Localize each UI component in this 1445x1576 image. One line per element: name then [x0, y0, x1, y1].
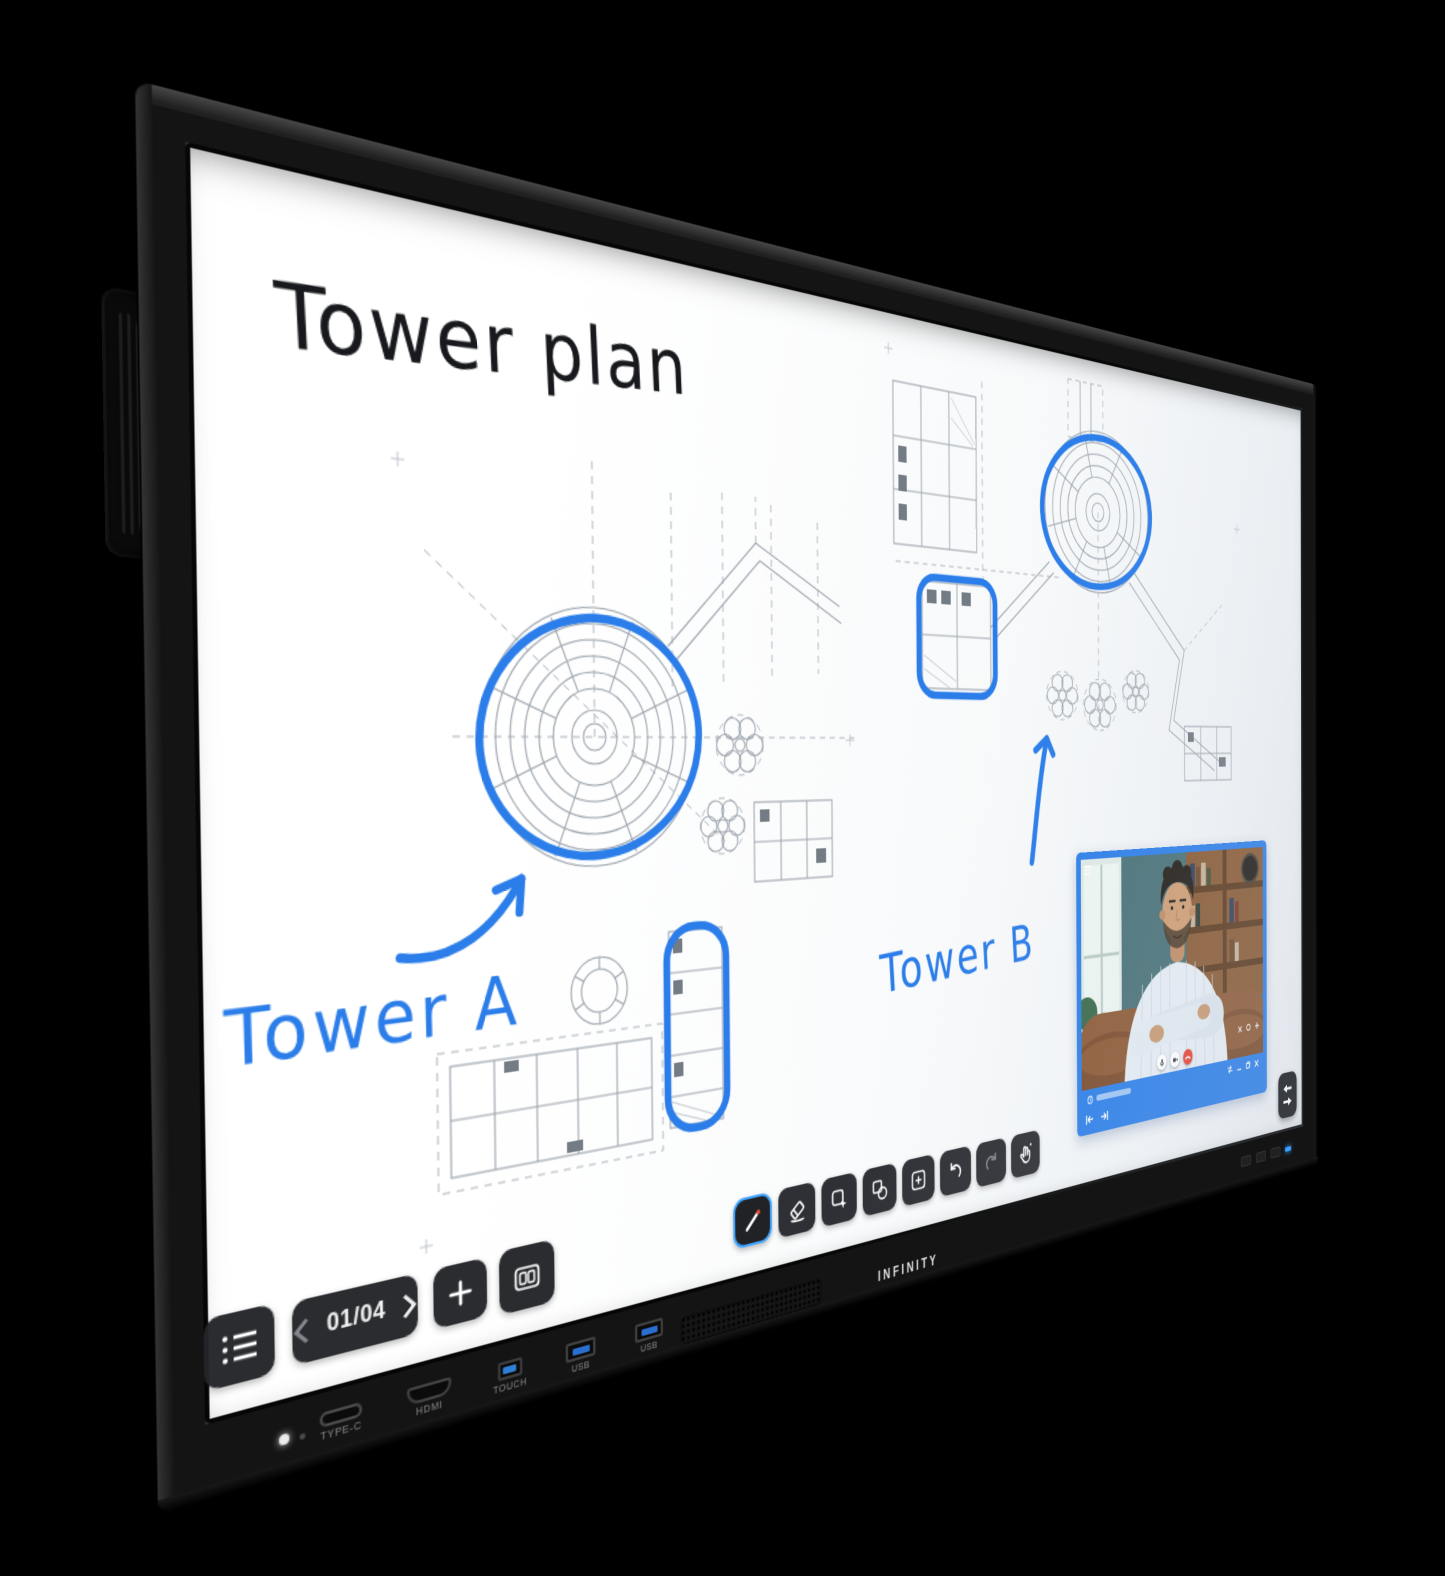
- mute-mic-button[interactable]: [1157, 1053, 1167, 1071]
- bezel-control-buttons: [1241, 1143, 1291, 1167]
- video-feed: [1081, 847, 1263, 1091]
- previous-page-icon[interactable]: [293, 1318, 318, 1344]
- ink-annotations: [391, 294, 1155, 1183]
- stair-cluster-a: [669, 927, 724, 1131]
- tree-icon: [716, 715, 764, 776]
- sensor-dot: [300, 1433, 306, 1441]
- undo-button[interactable]: [940, 1145, 971, 1197]
- tree-icon: [1122, 670, 1148, 713]
- swap-icon[interactable]: [1227, 1064, 1233, 1074]
- rooms-b-south: [1184, 726, 1231, 780]
- swap-windows-icon: [1282, 1081, 1292, 1108]
- shapes-icon: [870, 1175, 889, 1205]
- tree-icon: [1083, 679, 1116, 731]
- video-menu-icon[interactable]: [1085, 865, 1091, 877]
- page-number: 01/04: [326, 1298, 386, 1339]
- usb-port: USB: [635, 1317, 663, 1356]
- interactive-display: Tower plan Tower A Tower B: [135, 80, 1318, 1515]
- annotated-rooms-b: [922, 581, 991, 690]
- gesture-icon: [1018, 1141, 1034, 1168]
- undo-icon: [947, 1157, 964, 1185]
- rooms-a: [754, 800, 832, 882]
- bezel-right-face: [1313, 384, 1318, 1166]
- eraser-icon: [787, 1194, 807, 1225]
- touch-port: TOUCH: [493, 1355, 527, 1397]
- skip-to-end-icon[interactable]: [1100, 1110, 1108, 1123]
- type-c-port: TYPE-C: [320, 1402, 363, 1444]
- video-call-window[interactable]: [1076, 840, 1267, 1137]
- close-icon[interactable]: [1238, 1025, 1242, 1033]
- power-led: [279, 1433, 290, 1447]
- add-object-tool-button[interactable]: [902, 1154, 935, 1207]
- status-led: [1285, 1146, 1291, 1152]
- add-object-icon: [909, 1166, 927, 1195]
- display-bezel: Tower plan Tower A Tower B: [135, 80, 1318, 1515]
- next-page-icon[interactable]: [395, 1294, 418, 1319]
- gesture-tool-button[interactable]: [1011, 1130, 1040, 1179]
- restore-icon[interactable]: [1246, 1060, 1251, 1069]
- bezel-button[interactable]: [1241, 1154, 1251, 1167]
- building-b-west: [893, 380, 977, 552]
- camera-button[interactable]: [1170, 1051, 1180, 1068]
- eraser-tool-button[interactable]: [778, 1181, 815, 1238]
- select-icon: [829, 1184, 849, 1215]
- minimize-icon[interactable]: [1237, 1062, 1242, 1071]
- redo-icon: [983, 1149, 999, 1177]
- add-page-button[interactable]: [433, 1257, 487, 1330]
- meeting-info-text: [1096, 1087, 1131, 1101]
- add-icon[interactable]: [1255, 1021, 1260, 1030]
- swap-windows-button[interactable]: [1278, 1070, 1296, 1119]
- bezel-button[interactable]: [1271, 1146, 1281, 1159]
- add-page-icon: [445, 1272, 476, 1313]
- shapes-tool-button[interactable]: [863, 1163, 897, 1217]
- dual-page-icon: [513, 1258, 542, 1297]
- skip-to-start-icon[interactable]: [1085, 1113, 1094, 1126]
- arrow-tower-b: [1031, 738, 1047, 862]
- record-icon[interactable]: [1246, 1023, 1251, 1032]
- pen-icon: [742, 1204, 763, 1236]
- tree-icon: [700, 798, 744, 855]
- building-a-south: [437, 1024, 663, 1195]
- whiteboard-screen[interactable]: Tower plan Tower A Tower B: [185, 142, 1303, 1425]
- usb-port: USB: [566, 1336, 596, 1377]
- pen-tool-button[interactable]: [733, 1191, 772, 1250]
- close-window-icon[interactable]: [1254, 1058, 1259, 1067]
- blueprint-tower-a: [390, 428, 857, 1259]
- tree-icon: [1046, 671, 1078, 720]
- select-tool-button[interactable]: [821, 1172, 857, 1228]
- bezel-button[interactable]: [1256, 1150, 1266, 1163]
- page-list-icon: [219, 1325, 259, 1369]
- hang-up-button[interactable]: [1183, 1048, 1192, 1065]
- clock-icon: [1087, 1094, 1093, 1105]
- bezel-left-face: [135, 80, 174, 1515]
- redo-button[interactable]: [976, 1137, 1006, 1188]
